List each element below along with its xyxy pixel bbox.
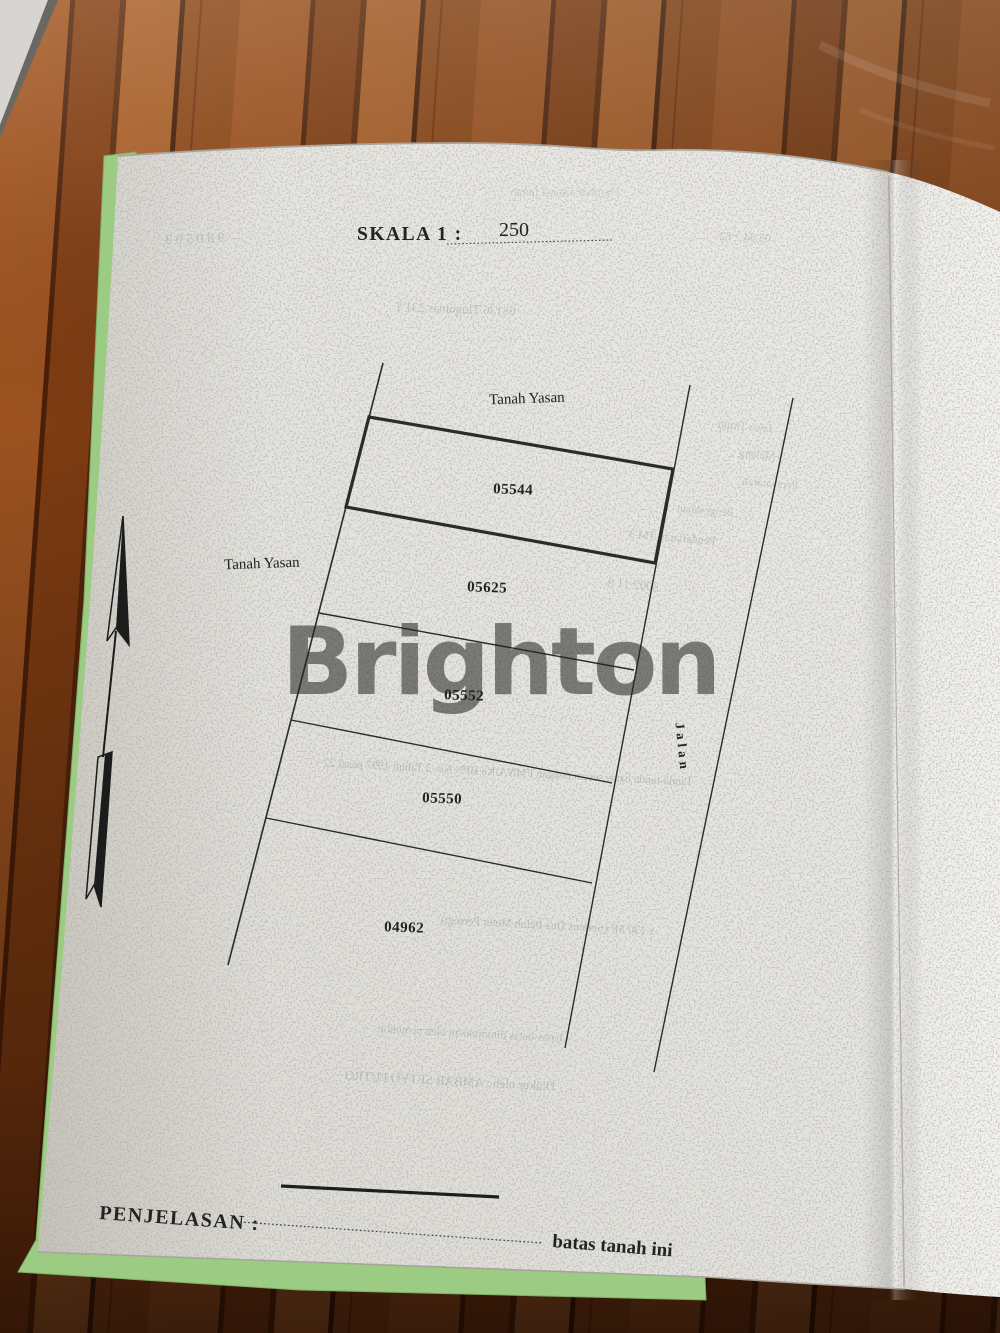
photo-of-land-sketch-document: Gambar situasi tanah 9 8 0 5 0 3 05 04 +… <box>0 0 1000 1333</box>
document-photo-canvas: Gambar situasi tanah 9 8 0 5 0 3 05 04 +… <box>0 0 1000 1333</box>
parcel-number-04962: 04962 <box>384 919 425 936</box>
parcel-number-05550: 05550 <box>422 790 463 807</box>
area-label-left: Tanah Yasan <box>224 555 301 574</box>
parcel-number-05625: 05625 <box>467 579 508 596</box>
area-label-top: Tanah Yasan <box>489 390 566 409</box>
scale-value: 250 <box>499 219 529 241</box>
parcel-number-05544: 05544 <box>493 481 534 498</box>
scale-label: SKALA 1 : <box>357 224 463 245</box>
ghost-text: 05 04 + 62 <box>719 229 771 245</box>
ghost-text: 9 8 0 5 0 3 <box>165 231 225 248</box>
ghost-text: Gambar situasi tanah <box>510 184 620 199</box>
watermark-text: Brighton <box>282 608 719 717</box>
